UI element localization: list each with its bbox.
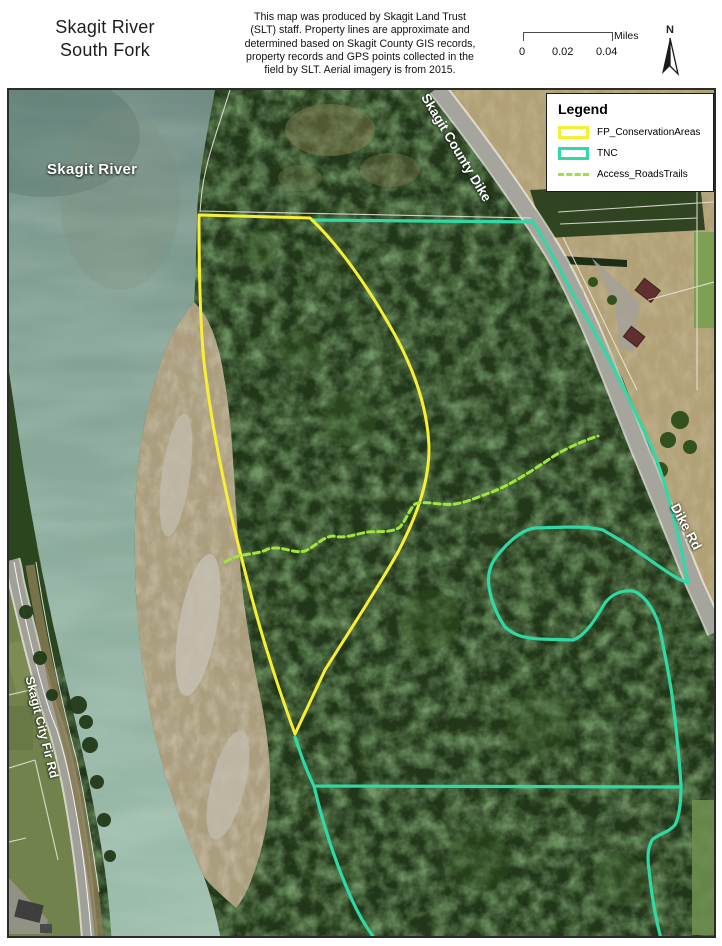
legend-item-label: FP_ConservationAreas xyxy=(597,127,700,138)
page-title: Skagit River South Fork xyxy=(18,16,192,62)
disclaimer-text: This map was produced by Skagit Land Tru… xyxy=(224,11,496,78)
legend-item-tnc: TNC xyxy=(547,143,713,164)
scale-tick-004: 0.04 xyxy=(596,46,617,58)
map-document: Skagit River Skagit County Dike Dike Rd … xyxy=(0,0,722,946)
legend: Legend FP_ConservationAreas TNC Access_R… xyxy=(546,93,714,192)
north-arrow: N xyxy=(650,24,690,84)
aerial-imagery xyxy=(0,73,716,946)
field-green xyxy=(692,800,714,935)
access-trail-swatch-icon xyxy=(558,173,589,176)
tnc-swatch-icon xyxy=(558,147,589,160)
scale-bar xyxy=(523,32,613,41)
legend-item-fp-conservation: FP_ConservationAreas xyxy=(547,122,713,143)
scale-tick-002: 0.02 xyxy=(552,46,573,58)
label-skagit-river: Skagit River xyxy=(47,161,137,178)
scale-tick-0: 0 xyxy=(519,46,525,58)
north-label: N xyxy=(650,24,690,36)
title-line1: Skagit River xyxy=(55,17,154,37)
title-line2: South Fork xyxy=(60,40,150,60)
legend-title: Legend xyxy=(558,101,713,117)
legend-item-label: Access_RoadsTrails xyxy=(597,169,688,180)
building xyxy=(40,924,52,933)
scale-unit-label: Miles xyxy=(614,30,639,42)
legend-item-label: TNC xyxy=(597,148,618,159)
north-arrow-icon xyxy=(650,36,690,80)
fp-conservation-swatch-icon xyxy=(558,126,589,139)
legend-item-access-trails: Access_RoadsTrails xyxy=(547,164,713,185)
